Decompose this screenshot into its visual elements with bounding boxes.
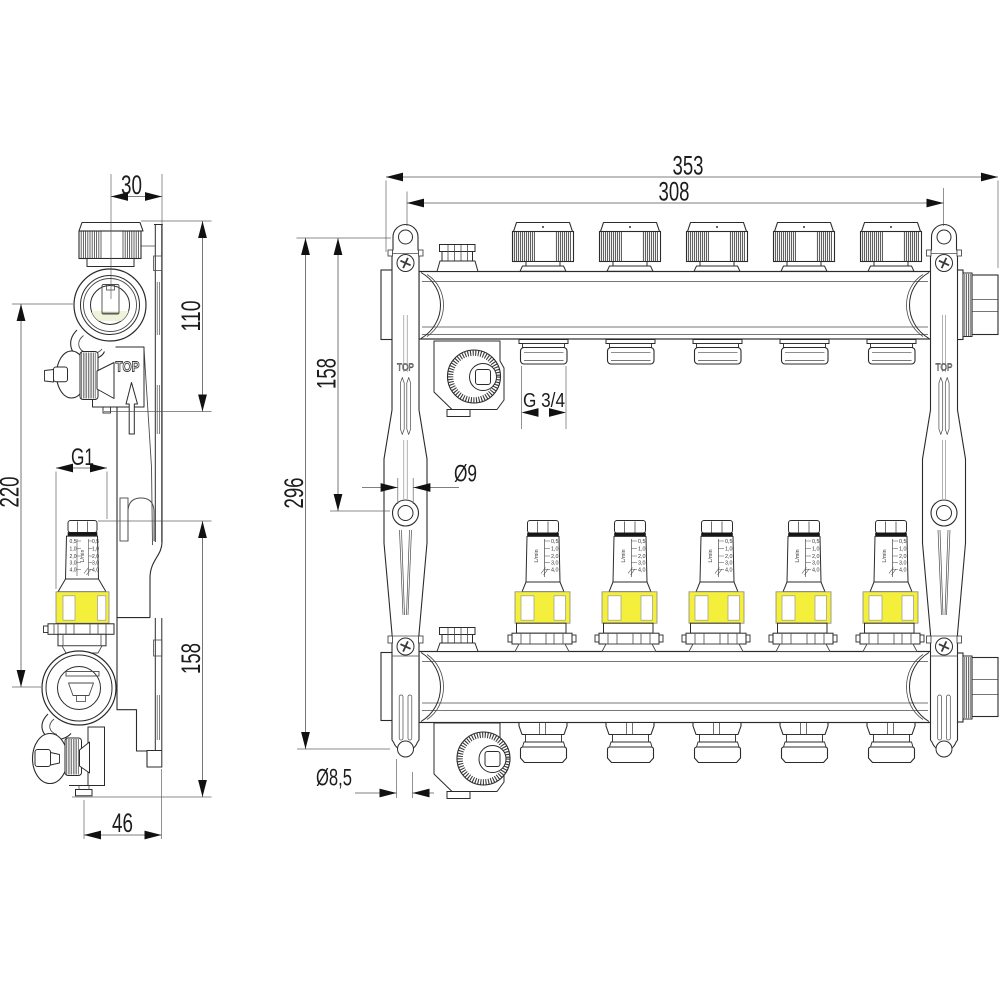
svg-text:2,0: 2,0 <box>70 554 77 560</box>
svg-text:4,0: 4,0 <box>638 568 646 574</box>
svg-text:3,0: 3,0 <box>812 561 820 567</box>
svg-text:2,0: 2,0 <box>638 554 646 560</box>
svg-text:4,0: 4,0 <box>812 568 820 574</box>
svg-text:1,0: 1,0 <box>725 547 733 553</box>
svg-text:L/min: L/min <box>621 549 627 562</box>
svg-text:2,0: 2,0 <box>812 554 820 560</box>
svg-text:2,0: 2,0 <box>725 554 733 560</box>
svg-text:296: 296 <box>279 478 309 509</box>
svg-text:4,0: 4,0 <box>70 568 77 574</box>
svg-text:4,0: 4,0 <box>92 568 99 574</box>
svg-text:0,5: 0,5 <box>551 539 559 545</box>
svg-text:L/min: L/min <box>534 549 540 562</box>
svg-text:G 3/4: G 3/4 <box>523 390 565 412</box>
svg-text:L/min: L/min <box>708 549 714 562</box>
svg-text:3,0: 3,0 <box>70 561 77 567</box>
svg-text:3,0: 3,0 <box>725 561 733 567</box>
svg-text:1,0: 1,0 <box>551 547 559 553</box>
svg-text:TOP: TOP <box>116 359 140 376</box>
svg-text:2,0: 2,0 <box>899 554 907 560</box>
svg-text:4,0: 4,0 <box>551 568 559 574</box>
svg-text:1,0: 1,0 <box>812 547 820 553</box>
svg-text:4,0: 4,0 <box>899 568 907 574</box>
svg-text:0,5: 0,5 <box>812 539 820 545</box>
svg-text:TOP: TOP <box>936 362 953 374</box>
svg-text:158: 158 <box>312 358 342 389</box>
svg-text:3,0: 3,0 <box>92 561 99 567</box>
svg-text:1,0: 1,0 <box>70 547 77 553</box>
svg-text:1,0: 1,0 <box>899 547 907 553</box>
svg-text:Ø8,5: Ø8,5 <box>316 765 352 792</box>
svg-text:2,0: 2,0 <box>551 554 559 560</box>
svg-text:1,0: 1,0 <box>92 547 99 553</box>
svg-text:46: 46 <box>112 808 133 838</box>
svg-text:TOP: TOP <box>397 362 414 374</box>
svg-text:0,5: 0,5 <box>92 539 99 545</box>
svg-text:Ø9: Ø9 <box>454 461 477 488</box>
svg-text:L/min: L/min <box>795 549 801 562</box>
svg-text:308: 308 <box>659 177 690 207</box>
svg-text:0,5: 0,5 <box>638 539 646 545</box>
svg-text:L/min: L/min <box>882 549 888 562</box>
svg-text:0,5: 0,5 <box>725 539 733 545</box>
svg-text:3,0: 3,0 <box>899 561 907 567</box>
svg-text:L/min: L/min <box>80 550 86 563</box>
svg-text:2,0: 2,0 <box>92 554 99 560</box>
svg-text:4,0: 4,0 <box>725 568 733 574</box>
svg-text:110: 110 <box>176 301 206 332</box>
svg-text:3,0: 3,0 <box>551 561 559 567</box>
svg-text:0,5: 0,5 <box>899 539 907 545</box>
svg-text:0,5: 0,5 <box>70 539 77 545</box>
svg-text:3,0: 3,0 <box>638 561 646 567</box>
svg-text:158: 158 <box>176 643 206 674</box>
svg-text:1,0: 1,0 <box>638 547 646 553</box>
